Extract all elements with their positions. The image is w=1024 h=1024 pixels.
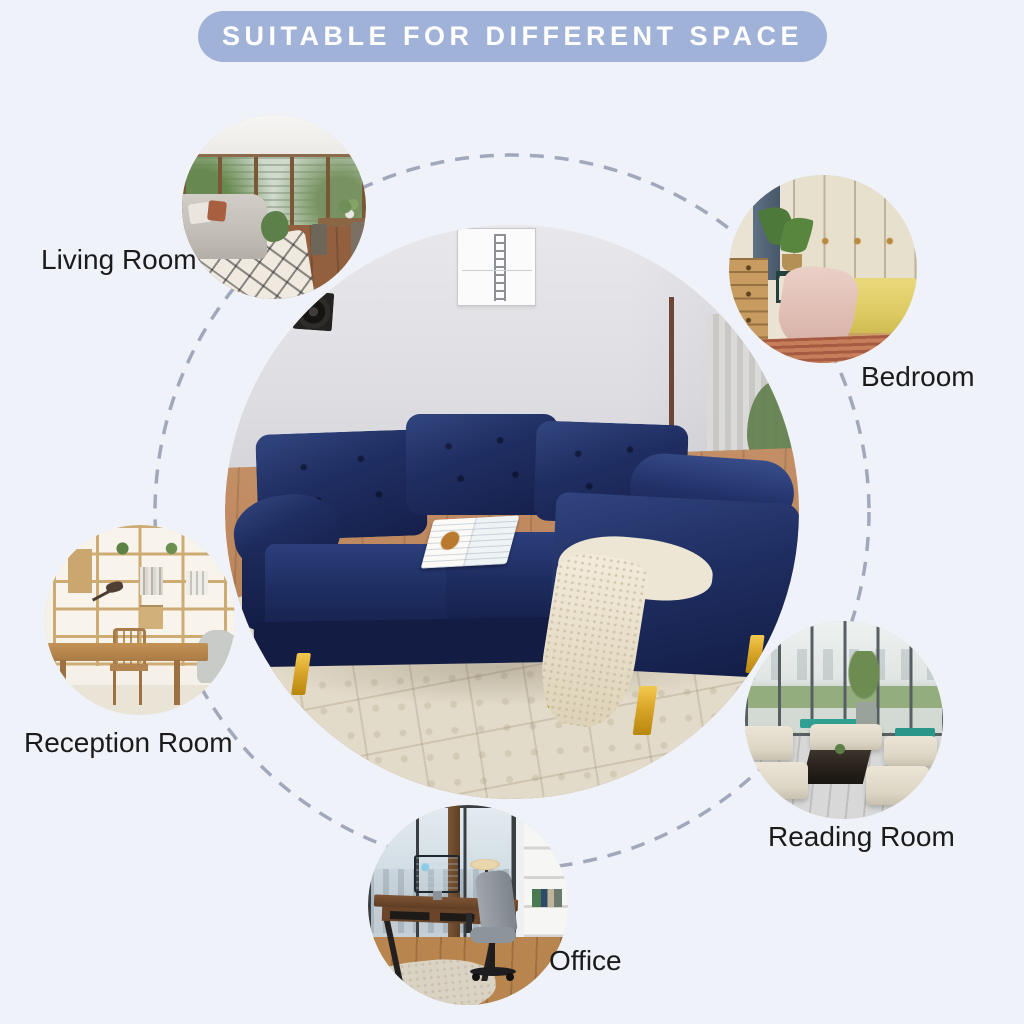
open-book <box>421 515 520 568</box>
office-chair-back <box>474 869 517 935</box>
ceiling <box>182 115 366 155</box>
living-room-photo <box>182 115 366 299</box>
monitor-stand <box>433 891 442 900</box>
table-plant <box>832 742 848 756</box>
potted-tree <box>844 651 884 706</box>
dresser <box>729 258 768 341</box>
reception-room-label: Reception Room <box>24 727 233 759</box>
bookshelf <box>524 817 568 937</box>
wood-desk <box>45 643 208 661</box>
reception-room-scene <box>45 525 235 715</box>
monitor <box>414 855 460 893</box>
desk-leg <box>174 660 180 706</box>
desk-lamp <box>470 859 500 870</box>
drawer-box <box>140 605 163 630</box>
desk-leg <box>60 660 66 706</box>
art-divider-line <box>462 270 533 271</box>
cream-sofa <box>745 726 793 760</box>
bedroom-scene <box>729 175 917 363</box>
office-scene <box>368 805 568 1005</box>
office-chair-seat <box>470 927 516 943</box>
reception-room-photo <box>45 525 235 715</box>
living-room-label: Living Room <box>41 244 197 276</box>
art-ladder-drawing <box>494 234 506 301</box>
banner-title: SUITABLE FOR DIFFERENT SPACE <box>222 21 803 52</box>
books <box>532 889 562 907</box>
flower-vase <box>337 196 361 220</box>
bedroom-label: Bedroom <box>861 361 975 393</box>
pillow <box>207 201 227 223</box>
cream-sofa <box>866 766 929 806</box>
chair-caster <box>472 973 480 981</box>
books <box>186 571 209 596</box>
reading-room-photo <box>745 621 943 819</box>
living-room-scene <box>182 115 366 299</box>
office-chair-post <box>490 943 495 969</box>
reading-room-label: Reading Room <box>768 821 955 853</box>
books <box>140 567 163 596</box>
office-label: Office <box>549 945 622 977</box>
dining-chair <box>351 222 366 255</box>
bedroom-photo <box>729 175 917 363</box>
storage-box <box>68 567 93 594</box>
chair-caster <box>506 973 514 981</box>
shelf-plant <box>163 540 180 557</box>
cream-sofa <box>747 762 808 800</box>
dining-chair <box>311 224 328 255</box>
center-product-photo <box>225 225 799 799</box>
banner-pill: SUITABLE FOR DIFFERENT SPACE <box>198 11 827 62</box>
framed-art <box>457 228 536 306</box>
wood-chair-legs <box>113 671 142 705</box>
wood-chair-seat <box>110 664 148 672</box>
reading-room-scene <box>745 621 943 819</box>
office-photo <box>368 805 568 1005</box>
shelf-plant <box>113 540 132 557</box>
sofa-room-scene <box>225 225 799 799</box>
plant <box>261 211 289 242</box>
cream-sofa <box>884 736 937 766</box>
infographic-canvas: SUITABLE FOR DIFFERENT SPACE <box>0 0 1024 1024</box>
